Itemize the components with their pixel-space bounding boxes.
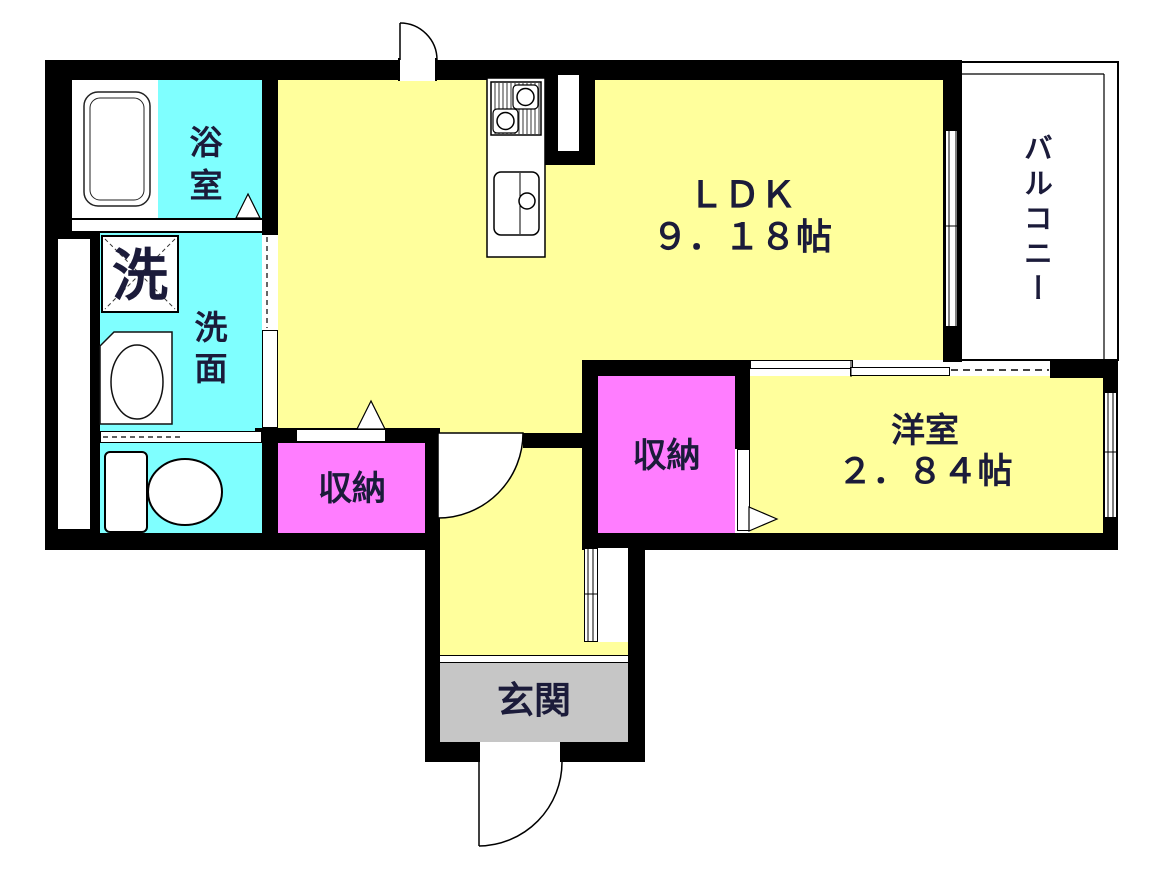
floor-plan: 浴室 洗 洗面 ＬＤＫ ９．１８帖 バルコニー 収納 収納 洋室 ２．８４帖 玄… — [0, 0, 1171, 879]
wall-washroom-ldk-upper — [262, 80, 278, 235]
balcony-edge-band — [950, 364, 1050, 376]
western-room-size-label: ２．８４帖 — [775, 452, 1075, 492]
balcony-label: バルコニー — [1018, 100, 1051, 340]
bathroom-label: 浴室 — [184, 98, 222, 238]
entrance-side-nook — [598, 548, 628, 642]
wall-bottom-right — [582, 533, 1118, 550]
room-toilet — [100, 443, 262, 533]
wall-hall-left — [425, 428, 440, 762]
service-door-opening — [398, 58, 437, 81]
storage-hall-door — [296, 429, 386, 442]
ldk-label: ＬＤＫ — [617, 174, 867, 215]
wall-storage-west-left — [582, 360, 598, 533]
entrance-door-opening — [478, 742, 562, 762]
ldk-balcony-window — [945, 130, 960, 327]
pillar-duct-space — [557, 74, 580, 152]
hall-window — [584, 548, 598, 642]
wall-top-left — [45, 60, 398, 80]
ldk-western-sliding-door-1 — [750, 360, 853, 369]
washroom-sliding-door-opening — [262, 235, 278, 330]
bathroom-door — [72, 218, 262, 233]
wall-entrance-right — [628, 533, 645, 762]
ldk-western-sliding-door-2 — [850, 367, 950, 376]
storage-west-label: 収納 — [598, 437, 735, 476]
storage-west-door — [737, 449, 750, 531]
washroom-label: 洗面 — [189, 286, 227, 416]
wall-bottom-left — [45, 533, 440, 550]
laundry-label: 洗 — [102, 244, 178, 308]
wall-top-right — [437, 60, 958, 80]
room-bathtub-area — [72, 80, 158, 218]
ldk-size-label: ９．１８帖 — [592, 216, 892, 257]
western-room-label: 洋室 — [825, 412, 1025, 451]
wall-storage-west-right — [735, 360, 750, 449]
entrance-door-arc — [479, 762, 562, 846]
entrance-label: 玄関 — [440, 680, 628, 723]
entrance-step — [440, 655, 628, 663]
toilet-sliding-door — [100, 431, 262, 443]
washroom-sliding-door-panel — [262, 330, 278, 428]
room-ldk-lower — [278, 360, 582, 428]
wall-storage-west-top — [582, 360, 750, 376]
service-door-arc — [400, 23, 437, 60]
window-left — [57, 238, 91, 530]
wall-left-upper — [45, 60, 72, 236]
wall-washroom-ldk-lower — [262, 428, 278, 533]
western-window — [1104, 392, 1117, 518]
wall-entrance-bottom-b — [562, 742, 645, 762]
storage-hall-label: 収納 — [282, 470, 422, 509]
wall-entrance-bottom-a — [425, 742, 478, 762]
